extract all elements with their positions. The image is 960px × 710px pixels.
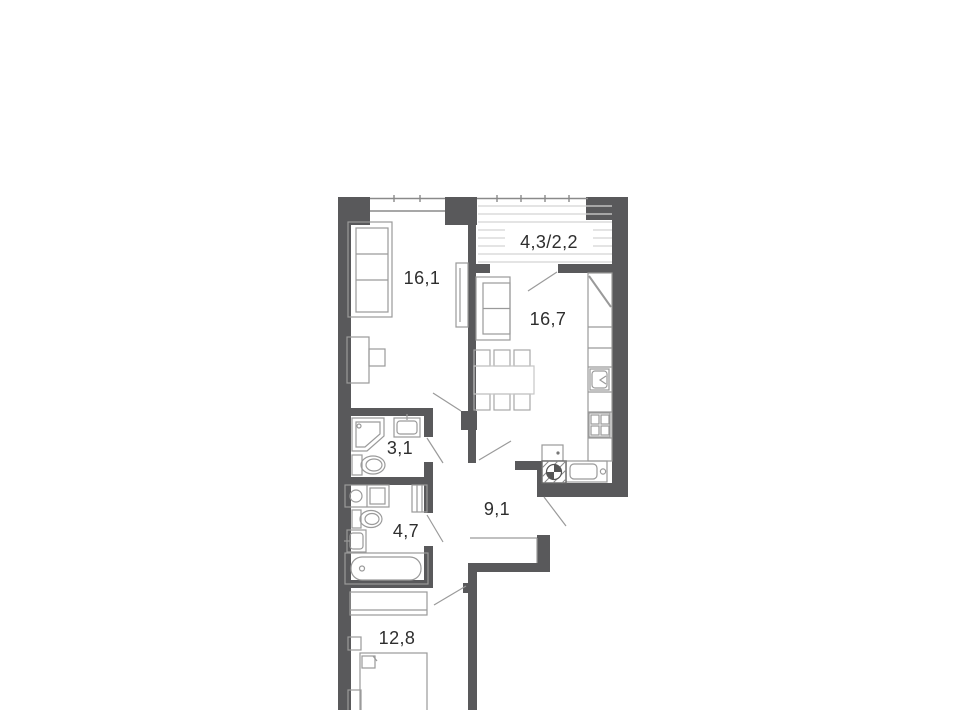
- label-hallway: 9,1: [484, 499, 510, 519]
- wc-toilet: [352, 455, 385, 475]
- label-kitchen: 16,7: [530, 309, 567, 329]
- entrance-door: [544, 497, 566, 526]
- wall-left-exterior: [338, 197, 351, 710]
- floorplan-svg: 16,1 4,3/2,2 16,7 3,1 4,7 9,1 12,8: [0, 0, 960, 710]
- wall-kitchen-bottom: [548, 483, 628, 497]
- label-loggia: 4,3/2,2: [520, 232, 578, 252]
- label-wc: 3,1: [387, 438, 413, 458]
- wall-wc-right-top: [424, 408, 433, 437]
- bed: [360, 653, 427, 710]
- wall-living-door-cap: [461, 411, 477, 430]
- wardrobe: [350, 592, 427, 615]
- living-chair: [369, 349, 385, 366]
- wall-loggia-bottom-left: [468, 264, 490, 273]
- wc-sink: [394, 414, 420, 437]
- wall-kitchen-south-stub: [515, 461, 542, 470]
- kitchen-oven: [566, 461, 607, 482]
- bathtub: [345, 553, 428, 584]
- label-bathroom: 4,7: [393, 521, 419, 541]
- wall-top-left-block: [338, 197, 370, 225]
- wall-bath-right-top: [424, 485, 433, 513]
- living-tv-unit: [456, 263, 468, 327]
- washing-machine: [345, 485, 389, 507]
- fridge-diagonal: [589, 276, 611, 307]
- wall-loggia-bottom-right: [558, 264, 628, 273]
- wall-wc-top: [338, 408, 433, 416]
- dining-table: [474, 366, 534, 394]
- wall-right-exterior: [612, 197, 628, 497]
- bath-sink: [344, 530, 366, 552]
- wall-hall-bottom: [468, 563, 550, 572]
- floorplan-canvas: 16,1 4,3/2,2 16,7 3,1 4,7 9,1 12,8: [0, 0, 960, 710]
- kitchen-sofa: [476, 277, 510, 340]
- kitchen-door: [479, 441, 511, 460]
- loggia-door: [528, 272, 557, 291]
- windows: [370, 195, 588, 211]
- kitchen-stove: [589, 413, 610, 437]
- kitchen-sink-2: [542, 445, 563, 461]
- bedroom-door: [434, 586, 466, 605]
- wall-bedroom-right: [468, 572, 477, 710]
- vent-shaft: [542, 461, 566, 483]
- shower: [352, 418, 384, 451]
- entry-niche: [470, 538, 537, 563]
- kitchen-sink: [590, 369, 609, 390]
- wc-door: [427, 438, 443, 463]
- dining-chairs: [474, 350, 530, 410]
- wall-wc-bath-divider: [338, 477, 433, 485]
- living-sofa: [348, 222, 392, 317]
- bathroom-door: [427, 515, 443, 542]
- living-door: [433, 393, 461, 411]
- label-living-room: 16,1: [404, 268, 441, 288]
- label-bedroom: 12,8: [379, 628, 416, 648]
- bath-toilet: [352, 510, 382, 528]
